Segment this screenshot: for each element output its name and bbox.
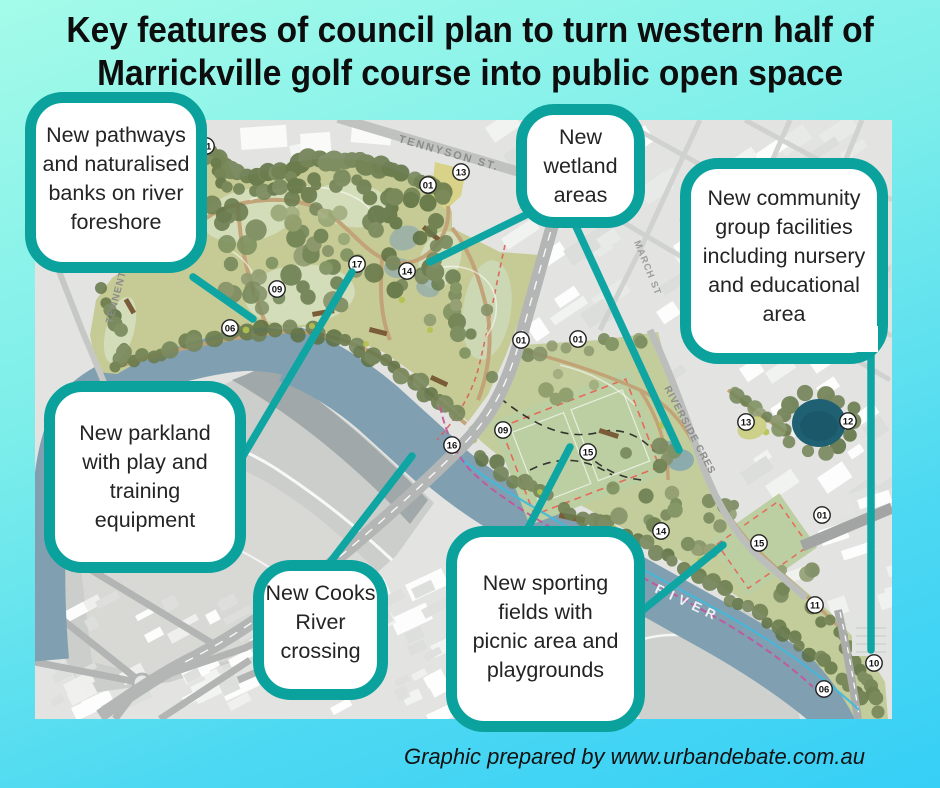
svg-text:10: 10: [869, 658, 880, 669]
svg-text:15: 15: [754, 538, 765, 549]
svg-text:09: 09: [498, 425, 509, 436]
svg-text:12: 12: [843, 416, 854, 427]
svg-text:13: 13: [741, 417, 752, 428]
svg-text:09: 09: [272, 284, 283, 295]
svg-text:16: 16: [447, 440, 458, 451]
svg-text:14: 14: [656, 526, 667, 537]
svg-text:01: 01: [817, 510, 828, 521]
svg-text:06: 06: [819, 684, 830, 695]
svg-text:01: 01: [516, 335, 527, 346]
svg-text:01: 01: [423, 180, 434, 191]
svg-text:06: 06: [225, 323, 236, 334]
svg-text:01: 01: [573, 334, 584, 345]
svg-text:15: 15: [583, 447, 594, 458]
svg-text:11: 11: [810, 600, 821, 611]
svg-text:14: 14: [402, 266, 413, 277]
svg-text:13: 13: [456, 167, 467, 178]
